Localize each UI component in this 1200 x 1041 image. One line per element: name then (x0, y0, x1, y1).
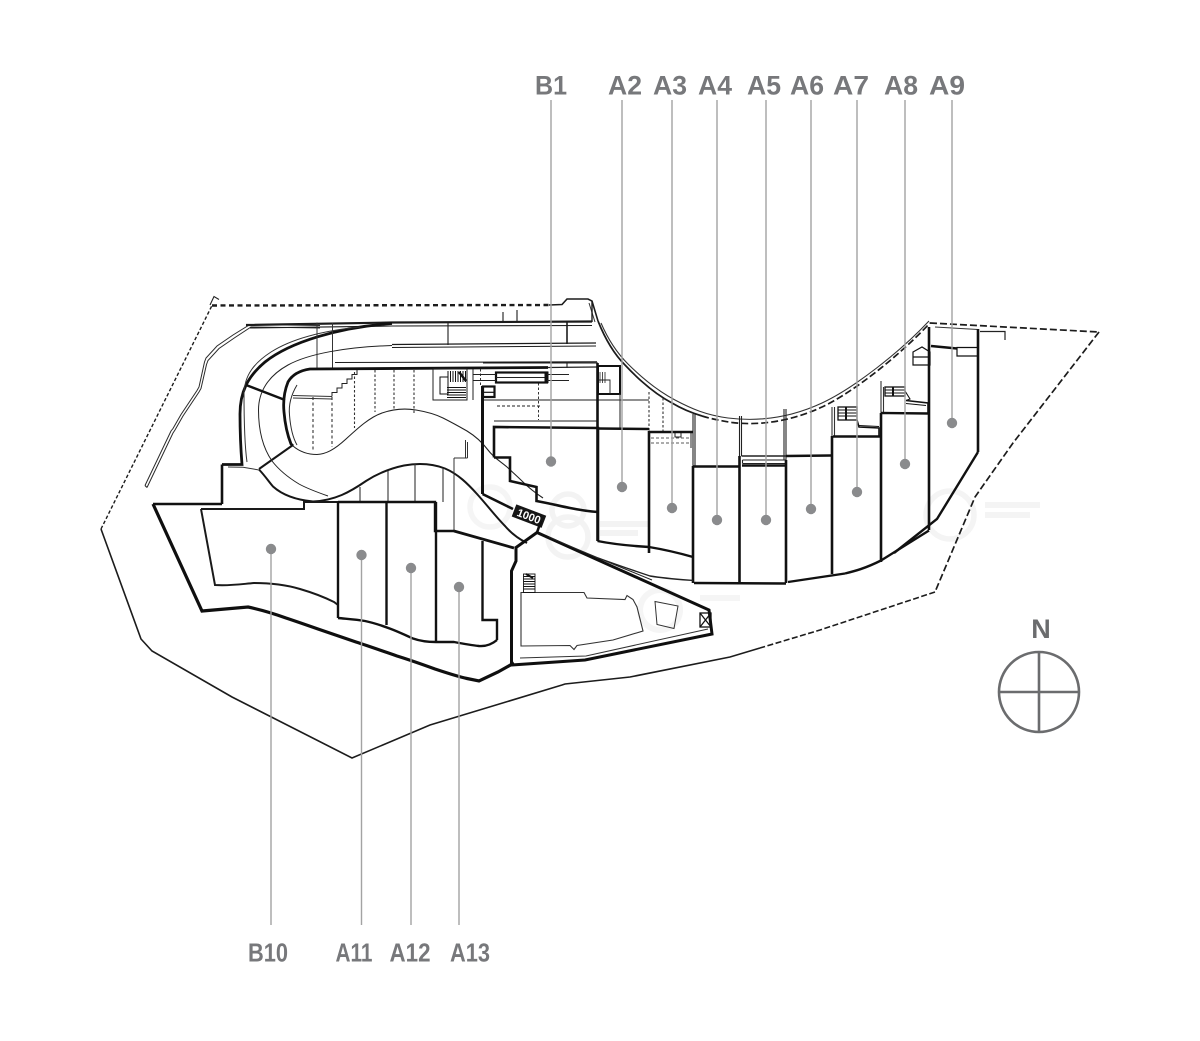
svg-text:N: N (1031, 614, 1051, 644)
svg-text:A11: A11 (336, 938, 373, 968)
svg-text:A4: A4 (698, 71, 732, 101)
svg-text:B1: B1 (535, 71, 567, 101)
svg-text:A2: A2 (608, 71, 642, 101)
svg-text:A7: A7 (833, 71, 869, 101)
svg-text:A3: A3 (653, 71, 687, 101)
svg-text:B10: B10 (248, 938, 288, 968)
svg-text:A12: A12 (390, 938, 431, 968)
svg-text:1000: 1000 (515, 507, 542, 527)
svg-text:A5: A5 (747, 71, 781, 101)
svg-text:A9: A9 (929, 71, 965, 101)
svg-text:A6: A6 (790, 71, 824, 101)
svg-text:A8: A8 (884, 71, 918, 101)
svg-text:A13: A13 (450, 938, 490, 968)
